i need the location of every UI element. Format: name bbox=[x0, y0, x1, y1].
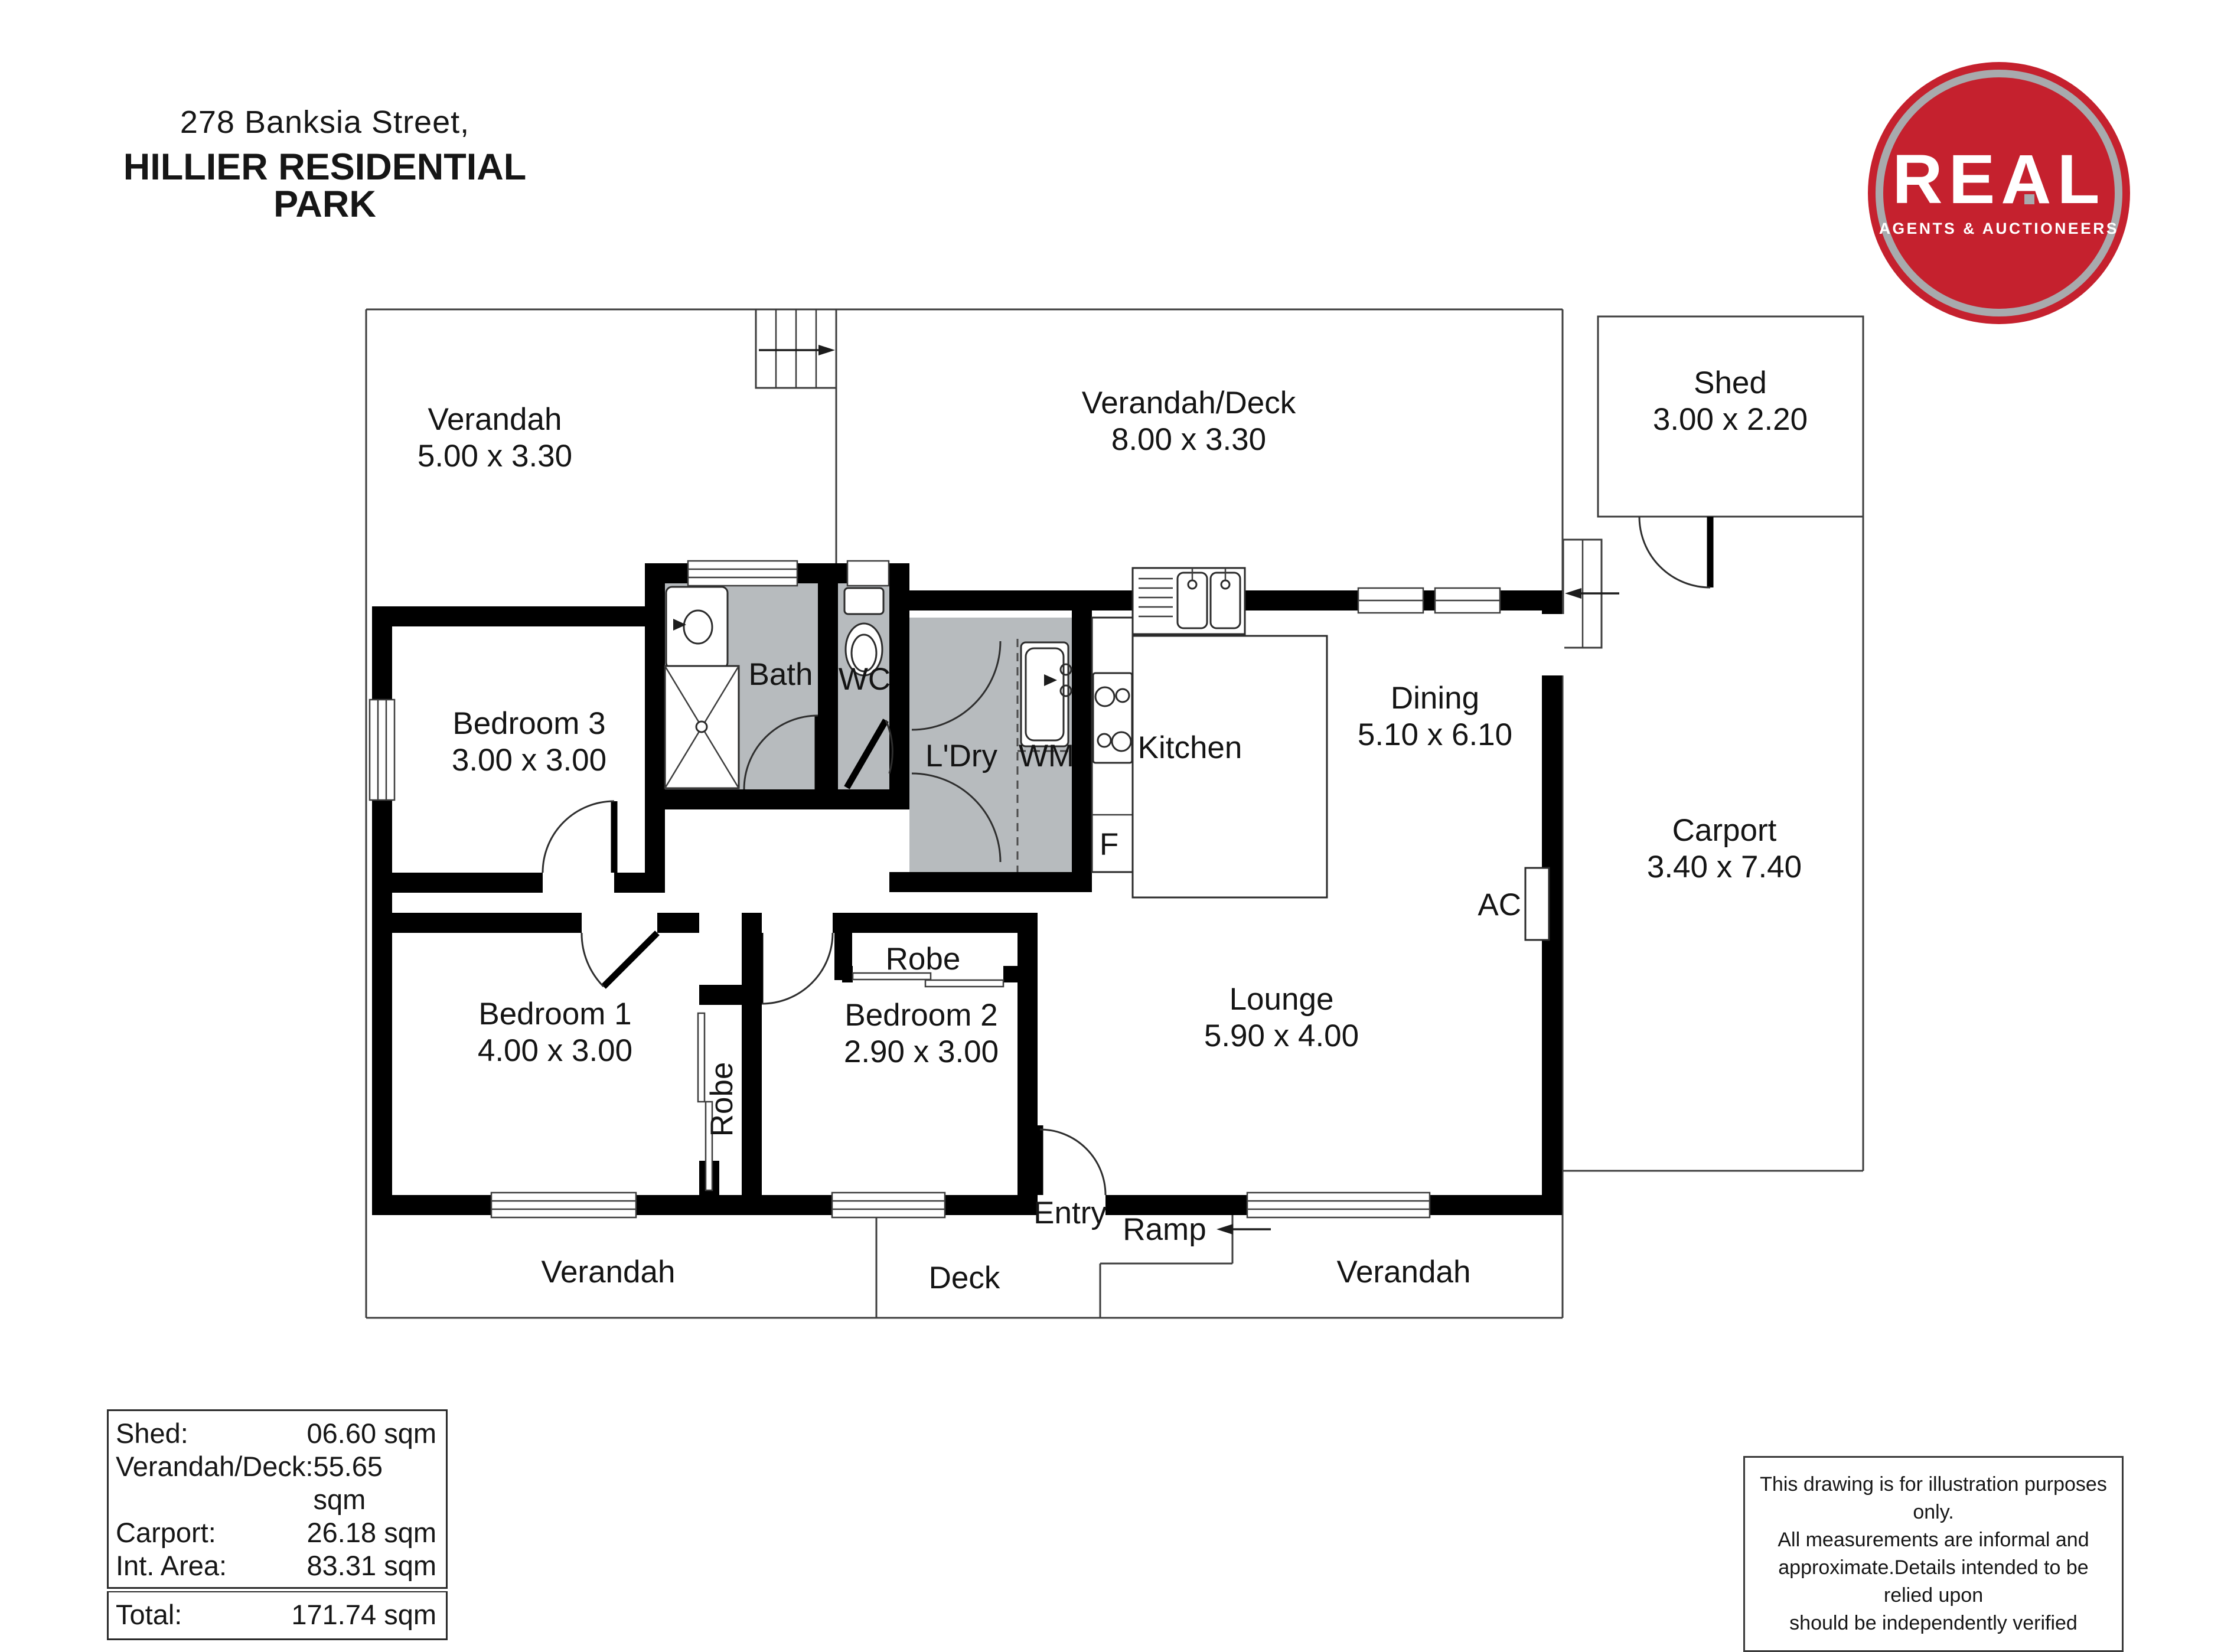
room-label-ac: AC bbox=[1478, 887, 1521, 922]
room-label-ldry: L'Dry bbox=[925, 739, 998, 773]
bedroom2-door bbox=[762, 933, 833, 1004]
bath-vanity bbox=[666, 587, 728, 668]
label-deck: Deck bbox=[929, 1261, 1000, 1295]
area-row-verandah-deck: Verandah/Deck: 55.65 sqm bbox=[116, 1450, 436, 1516]
area-row-total: Total: 171.74 sqm bbox=[116, 1598, 436, 1631]
page: { "title": { "address_line": "278 Banksi… bbox=[0, 0, 2234, 1626]
label-verandah-bottom-left: Verandah bbox=[542, 1255, 676, 1289]
disclaimer-line: This drawing is for illustration purpose… bbox=[1751, 1471, 2116, 1526]
steps-arrow-icon bbox=[1565, 588, 1581, 599]
room-dims-carport: 3.40 x 7.40 bbox=[1647, 850, 1802, 884]
room-label-verandah-deck: Verandah/Deck bbox=[1082, 386, 1296, 420]
room-dims-bedroom3: 3.00 x 3.00 bbox=[452, 743, 606, 778]
area-value: 26.18 sqm bbox=[307, 1516, 436, 1549]
room-label-bedroom3: Bedroom 3 bbox=[452, 706, 605, 741]
disclaimer-line: should be independently verified bbox=[1751, 1609, 2116, 1637]
room-label-bedroom1: Bedroom 1 bbox=[478, 997, 631, 1031]
stairs-top bbox=[756, 309, 836, 388]
outer-outline bbox=[366, 309, 1863, 1318]
room-labels: Verandah 5.00 x 3.30 Verandah/Deck 8.00 … bbox=[418, 365, 1808, 1295]
room-label-bedroom2: Bedroom 2 bbox=[844, 998, 997, 1033]
area-row-int-area: Int. Area: 83.31 sqm bbox=[116, 1549, 436, 1582]
label-ramp: Ramp bbox=[1123, 1212, 1206, 1247]
ramp-arrow bbox=[1217, 1224, 1271, 1235]
disclaimer-box: This drawing is for illustration purpose… bbox=[1743, 1456, 2124, 1652]
room-dims-bedroom1: 4.00 x 3.00 bbox=[478, 1033, 632, 1068]
room-dims-shed: 3.00 x 2.20 bbox=[1653, 402, 1808, 437]
area-label: Carport: bbox=[116, 1516, 216, 1549]
room-dims-lounge: 5.90 x 4.00 bbox=[1204, 1018, 1359, 1053]
area-value: 55.65 sqm bbox=[313, 1450, 436, 1516]
room-label-fridge: F bbox=[1100, 827, 1118, 862]
area-total-box: Total: 171.74 sqm bbox=[107, 1591, 448, 1640]
floor-plan-svg: Verandah 5.00 x 3.30 Verandah/Deck 8.00 … bbox=[0, 0, 2234, 1626]
room-label-shed: Shed bbox=[1694, 365, 1767, 400]
room-label-verandah-top: Verandah bbox=[428, 402, 562, 437]
area-label: Shed: bbox=[116, 1417, 188, 1450]
kitchen-sink bbox=[1133, 568, 1245, 634]
room-label-dining: Dining bbox=[1391, 681, 1479, 716]
area-total-value: 171.74 sqm bbox=[291, 1598, 436, 1631]
room-label-carport: Carport bbox=[1672, 813, 1777, 848]
area-label: Verandah/Deck: bbox=[116, 1450, 313, 1516]
room-label-kitchen: Kitchen bbox=[1138, 730, 1242, 765]
room-label-lounge: Lounge bbox=[1229, 982, 1334, 1017]
room-dims-bedroom2: 2.90 x 3.00 bbox=[844, 1034, 999, 1069]
air-conditioner bbox=[1525, 868, 1549, 940]
room-dims-verandah-deck: 8.00 x 3.30 bbox=[1111, 422, 1266, 457]
cooktop bbox=[1093, 673, 1132, 763]
area-summary-table: Shed: 06.60 sqm Verandah/Deck: 55.65 sqm… bbox=[107, 1409, 448, 1640]
area-row-shed: Shed: 06.60 sqm bbox=[116, 1417, 436, 1450]
bedroom1-door bbox=[582, 933, 657, 987]
area-value: 06.60 sqm bbox=[307, 1417, 436, 1450]
room-dims-dining: 5.10 x 6.10 bbox=[1358, 717, 1512, 752]
room-label-robe1: Robe bbox=[705, 1062, 739, 1137]
room-dims-verandah-top: 5.00 x 3.30 bbox=[418, 439, 572, 474]
area-label: Int. Area: bbox=[116, 1549, 227, 1582]
steps-east bbox=[1563, 540, 1619, 648]
label-entry: Entry bbox=[1033, 1196, 1107, 1230]
shower bbox=[665, 666, 739, 788]
back-door-opening bbox=[1540, 614, 1564, 675]
shed-door bbox=[1639, 517, 1710, 587]
area-value: 83.31 sqm bbox=[307, 1549, 436, 1582]
area-rows-box: Shed: 06.60 sqm Verandah/Deck: 55.65 sqm… bbox=[107, 1409, 448, 1589]
label-verandah-bottom-right: Verandah bbox=[1337, 1255, 1471, 1289]
entry-door bbox=[1040, 1125, 1105, 1195]
room-label-robe2: Robe bbox=[886, 942, 961, 977]
room-label-bath: Bath bbox=[748, 657, 813, 692]
bedroom3-door bbox=[543, 801, 614, 873]
area-total-label: Total: bbox=[116, 1598, 182, 1631]
disclaimer-line: All measurements are informal and bbox=[1751, 1526, 2116, 1554]
stairs-arrow-icon bbox=[818, 345, 835, 355]
area-row-carport: Carport: 26.18 sqm bbox=[116, 1516, 436, 1549]
disclaimer-line: approximate.Details intended to be relie… bbox=[1751, 1554, 2116, 1609]
room-label-wm: WM bbox=[1019, 739, 1074, 773]
room-label-wc: WC bbox=[839, 662, 891, 697]
